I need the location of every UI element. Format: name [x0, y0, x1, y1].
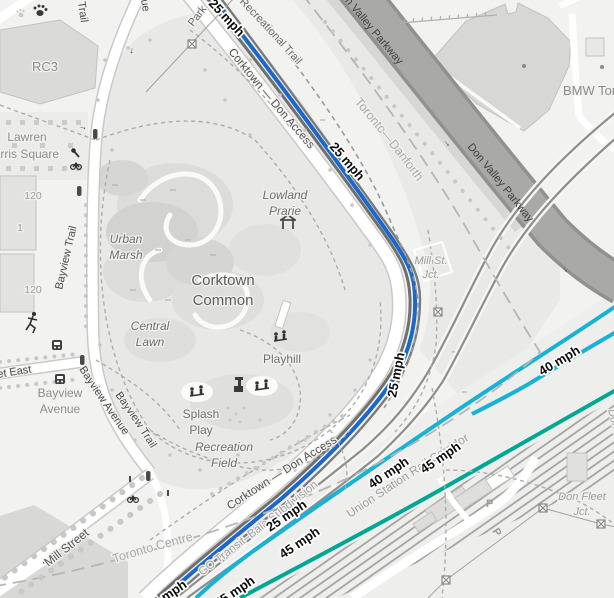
- map-viewport[interactable]: → → → → → Trail ue Park RC3 Lawren Harri…: [0, 0, 614, 598]
- building-left-2: [0, 254, 34, 312]
- label-addr-1: 1: [17, 222, 23, 234]
- building-left-1: [0, 176, 36, 250]
- label-central-1: Central: [131, 319, 170, 333]
- label-mill-st-jct-1: Mill St.: [415, 255, 448, 267]
- label-lawren-2: Harris Square: [0, 147, 59, 161]
- label-playhill: Playhill: [263, 352, 301, 366]
- label-addr-120a: 120: [24, 190, 42, 202]
- label-mill-st-jct-2: Jct.: [421, 269, 439, 281]
- label-urban-marsh-2: Marsh: [109, 248, 143, 262]
- label-rec-field-1: Recreation: [195, 440, 253, 454]
- map-canvas[interactable]: → → → → → Trail ue Park RC3 Lawren Harri…: [0, 0, 614, 598]
- label-splash-1: Splash: [183, 407, 220, 421]
- label-lawren-1: Lawren: [7, 130, 46, 144]
- label-bayview-ave-place-1: Bayview: [38, 386, 83, 400]
- label-rc3: RC3: [32, 59, 58, 74]
- one-way-arrow-icon: →: [127, 46, 138, 57]
- building-small-ne: [586, 38, 604, 56]
- label-bayview-ave-place-2: Avenue: [40, 402, 81, 416]
- label-avenue-partial: ue: [138, 0, 152, 13]
- label-corktown-common-2: Common: [193, 292, 254, 309]
- label-don-fleet-1: Don Fleet: [558, 491, 607, 503]
- label-don-fleet-2: Jct.: [572, 506, 590, 518]
- label-corktown-common-1: Corktown: [191, 272, 254, 289]
- label-addr-120b: 120: [24, 284, 42, 296]
- label-urban-marsh-1: Urban: [110, 232, 143, 246]
- label-central-2: Lawn: [136, 335, 165, 349]
- label-rec-field-2: Field: [211, 456, 237, 470]
- label-lowland-1: Lowland: [263, 188, 308, 202]
- parking-icon: P: [486, 498, 493, 510]
- label-lowland-2: Prarie: [269, 204, 301, 218]
- label-bmw-toronto: BMW Toronto: [563, 83, 614, 98]
- label-splash-2: Play: [189, 423, 212, 437]
